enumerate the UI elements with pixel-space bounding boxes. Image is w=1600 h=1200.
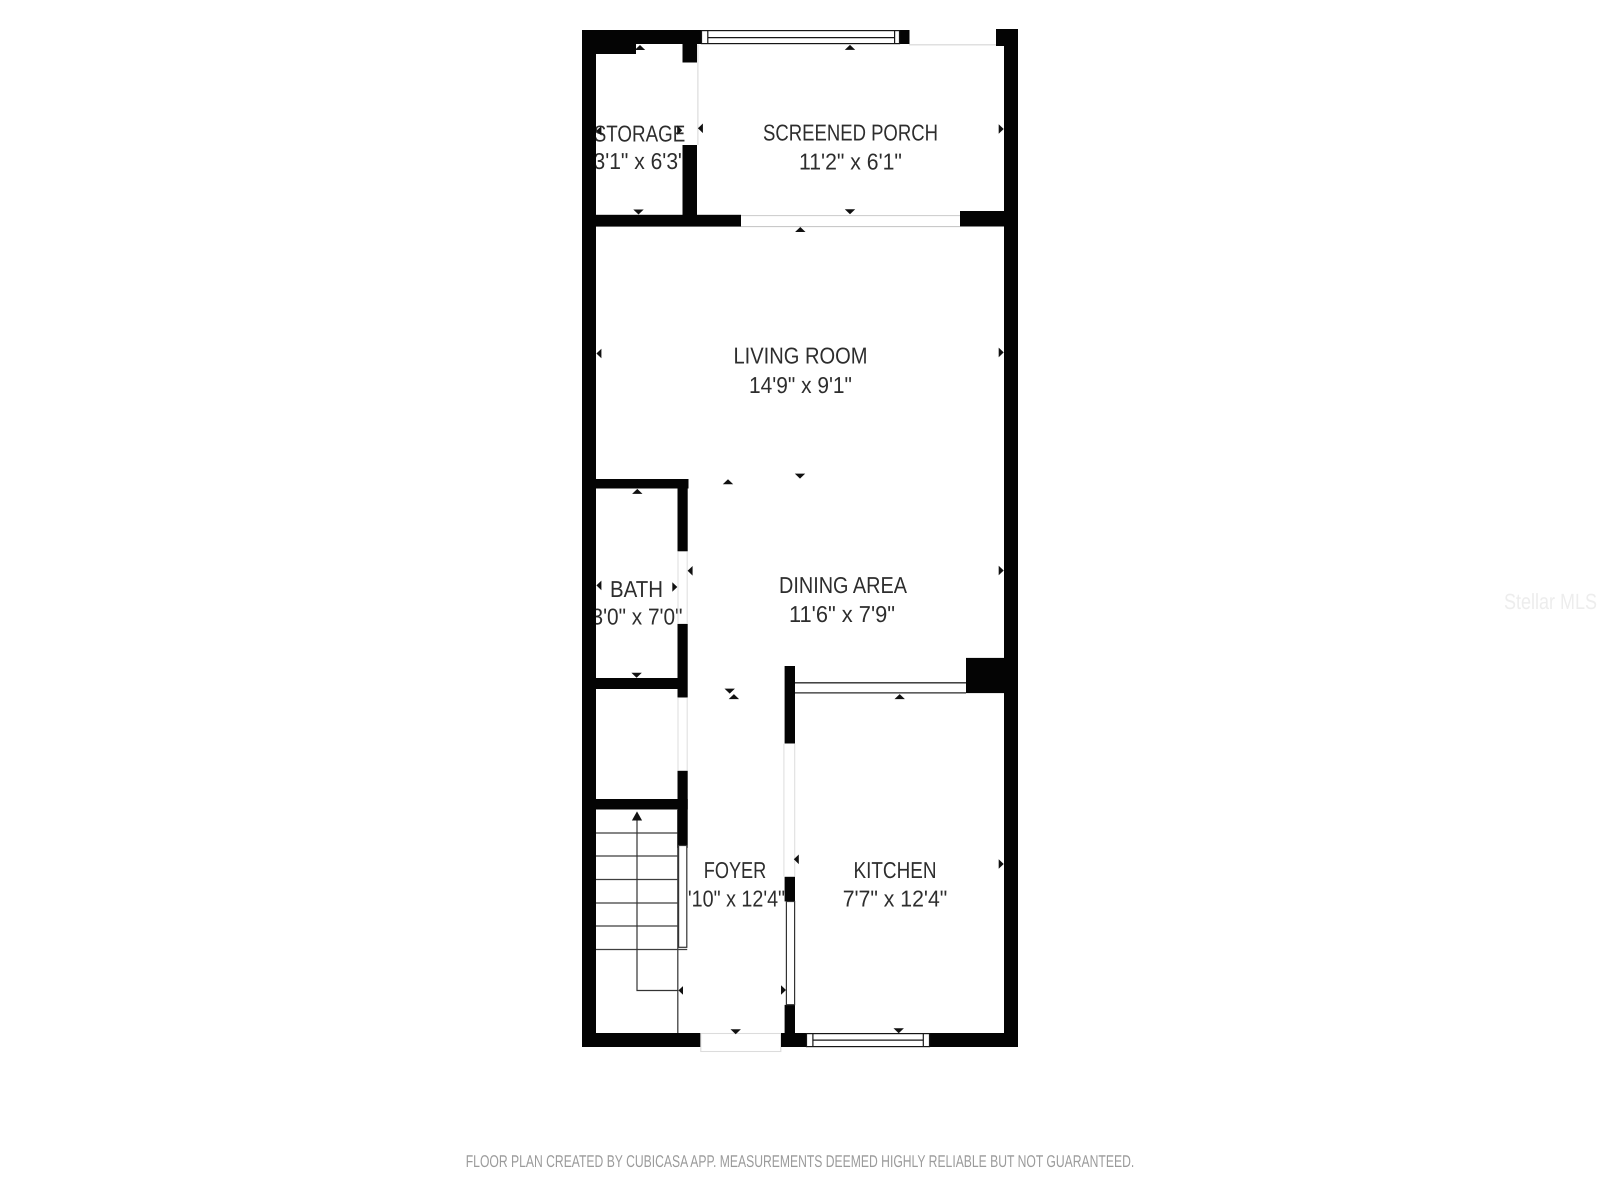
svg-text:BATH: BATH — [610, 576, 663, 602]
svg-text:DINING AREA: DINING AREA — [779, 572, 908, 598]
svg-text:11'2" x 6'1": 11'2" x 6'1" — [799, 148, 902, 174]
svg-text:3'0" x 7'0": 3'0" x 7'0" — [591, 604, 682, 630]
svg-text:FLOOR PLAN CREATED BY CUBICASA: FLOOR PLAN CREATED BY CUBICASA APP. MEAS… — [466, 1152, 1134, 1171]
svg-text:3'10" x 12'4": 3'10" x 12'4" — [677, 886, 785, 912]
svg-text:Stellar MLS: Stellar MLS — [1504, 589, 1597, 614]
svg-text:11'6" x 7'9": 11'6" x 7'9" — [789, 601, 895, 627]
svg-text:STORAGE: STORAGE — [594, 120, 685, 146]
svg-text:FOYER: FOYER — [704, 857, 767, 883]
svg-text:7'7" x 12'4": 7'7" x 12'4" — [843, 886, 948, 912]
svg-text:SCREENED PORCH: SCREENED PORCH — [763, 119, 938, 145]
svg-text:3'1" x 6'3": 3'1" x 6'3" — [593, 148, 685, 174]
svg-text:14'9" x 9'1": 14'9" x 9'1" — [749, 372, 852, 398]
svg-text:KITCHEN: KITCHEN — [854, 857, 937, 883]
svg-text:LIVING ROOM: LIVING ROOM — [733, 343, 867, 369]
